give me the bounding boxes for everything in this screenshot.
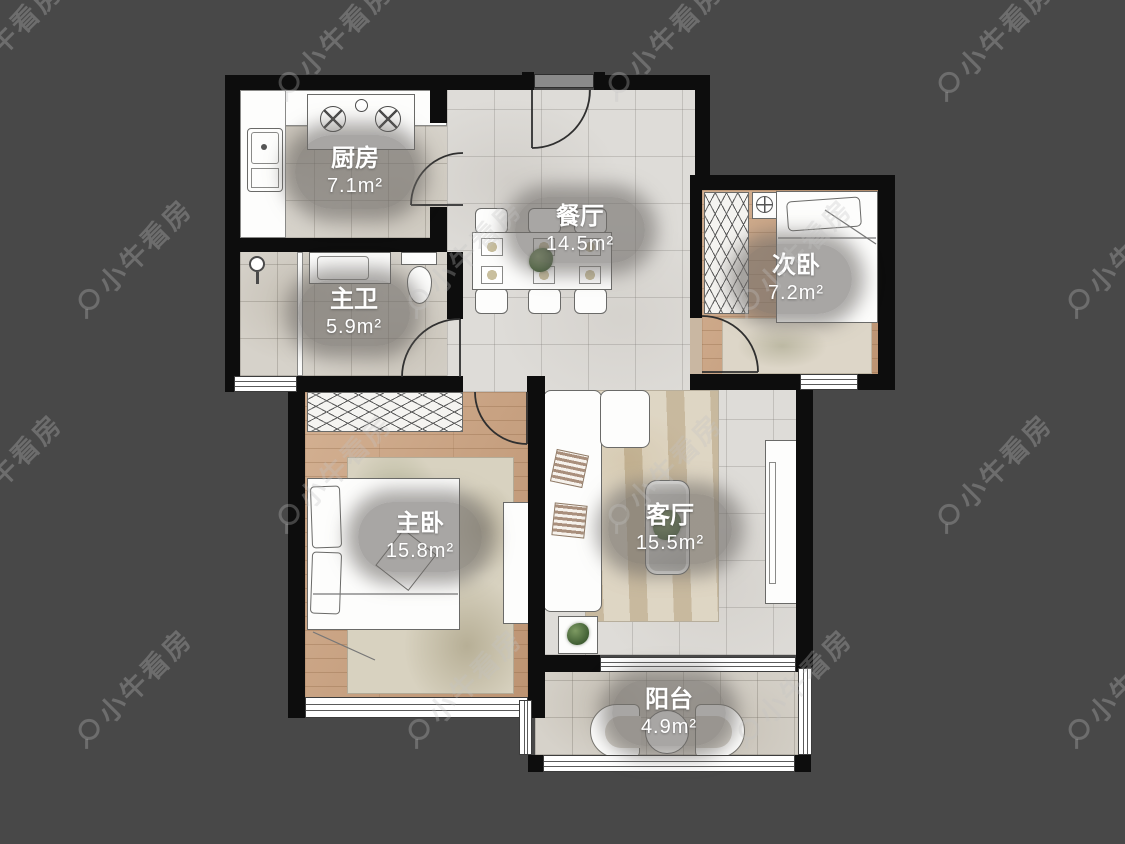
- shower-head-icon: [249, 256, 265, 272]
- window: [519, 700, 532, 755]
- burner-icon: [355, 99, 368, 112]
- room-area: 7.2m²: [768, 281, 824, 306]
- magnifier-logo-icon: [934, 68, 964, 98]
- door-jamb: [594, 72, 605, 90]
- magnifier-logo-icon: [74, 285, 104, 315]
- plate: [481, 238, 503, 256]
- wall: [297, 376, 463, 392]
- watermark-text: 小牛看房: [0, 0, 70, 84]
- room-name: 餐厅: [556, 203, 604, 232]
- window: [798, 668, 812, 755]
- watermark-text: 小牛看房: [948, 0, 1060, 84]
- watermark: 小牛看房: [0, 0, 70, 104]
- watermark-text: 小牛看房: [0, 403, 70, 515]
- sofa-cushion: [550, 449, 589, 488]
- pillow: [310, 485, 342, 548]
- pillow: [786, 196, 862, 231]
- sink-cabinet: [251, 168, 279, 188]
- room-label-kitchen: 厨房 7.1m²: [295, 135, 415, 209]
- pillow: [310, 551, 342, 614]
- watermark: 小牛看房: [68, 618, 200, 750]
- wall: [690, 374, 800, 390]
- wall: [878, 190, 895, 374]
- sofa: [543, 390, 602, 612]
- wall: [527, 376, 545, 392]
- magnifier-logo-icon: [74, 715, 104, 745]
- wall: [225, 75, 532, 90]
- dining-chair: [528, 288, 561, 314]
- room-label-second-bedroom: 次卧 7.2m²: [740, 244, 852, 314]
- watermark: 小牛看房: [1058, 188, 1125, 320]
- watermark-text: 小牛看房: [1078, 618, 1125, 730]
- wall: [795, 755, 811, 772]
- entrance-door-slab: [534, 74, 594, 88]
- wall: [695, 75, 710, 175]
- burner-icon: [375, 106, 401, 132]
- wall: [225, 75, 240, 392]
- room-label-living-room: 客厅 15.5m²: [608, 494, 732, 564]
- sliding-door-window: [600, 657, 796, 672]
- wall: [858, 374, 895, 390]
- wall: [225, 238, 447, 252]
- room-name: 主卫: [330, 286, 378, 315]
- room-label-master-bathroom: 主卫 5.9m²: [298, 280, 410, 346]
- table-lamp-icon: [756, 196, 773, 213]
- dining-chair: [574, 288, 607, 314]
- watermark-text: 小牛看房: [88, 618, 200, 730]
- room-name: 主卧: [396, 510, 444, 539]
- window: [543, 755, 795, 772]
- window: [234, 376, 297, 392]
- watermark: 小牛看房: [1058, 618, 1125, 750]
- doorway: [690, 318, 702, 374]
- watermark: 小牛看房: [928, 403, 1060, 535]
- room-name: 次卧: [772, 252, 820, 281]
- watermark-text: 小牛看房: [1078, 188, 1125, 300]
- shower-arm: [256, 272, 259, 284]
- wall: [430, 75, 447, 123]
- plate: [579, 266, 601, 284]
- wall: [690, 175, 895, 190]
- dining-chair: [475, 288, 508, 314]
- room-area: 7.1m²: [327, 174, 383, 199]
- watermark: 小牛看房: [928, 0, 1060, 104]
- burner-icon: [320, 106, 346, 132]
- tv-cabinet: [503, 502, 529, 624]
- wall: [538, 655, 600, 672]
- room-area: 5.9m²: [326, 315, 382, 340]
- window: [800, 374, 858, 390]
- wardrobe: [307, 392, 463, 432]
- room-name: 客厅: [646, 502, 694, 531]
- wall: [796, 390, 813, 655]
- door-jamb: [522, 72, 534, 90]
- watermark-text: 小牛看房: [948, 403, 1060, 515]
- wall: [603, 75, 710, 90]
- watermark: 小牛看房: [0, 403, 70, 535]
- tv: [769, 462, 776, 584]
- room-label-balcony: 阳台 4.9m²: [612, 680, 726, 746]
- wall: [430, 207, 447, 252]
- faucet: [261, 144, 267, 150]
- wall: [528, 392, 545, 718]
- room-name: 厨房: [331, 145, 379, 174]
- plate: [481, 266, 503, 284]
- sofa-cushion: [551, 502, 587, 538]
- bedside-rug: [722, 318, 872, 374]
- dining-chair: [475, 208, 508, 234]
- window: [305, 697, 528, 718]
- room-name: 阳台: [645, 686, 693, 715]
- room-area: 15.8m²: [386, 539, 454, 564]
- room-label-master-bedroom: 主卧 15.8m²: [358, 502, 482, 572]
- magnifier-logo-icon: [1064, 715, 1094, 745]
- wall: [690, 190, 702, 318]
- bathroom-sink: [317, 256, 369, 280]
- wall: [288, 392, 305, 697]
- watermark-text: 小牛看房: [88, 188, 200, 300]
- room-area: 14.5m²: [546, 232, 614, 257]
- room-area: 4.9m²: [641, 715, 697, 740]
- wall: [288, 697, 305, 718]
- magnifier-logo-icon: [1064, 285, 1094, 315]
- wall: [447, 252, 463, 319]
- floor-plan: 厨房 7.1m² 餐厅 14.5m² 次卧 7.2m² 主卫 5.9m² 主卧 …: [225, 72, 897, 778]
- floorplan-image: 小牛看房 小牛看房 小牛看房 小牛看房 小牛看房 小牛看房 小牛看房 小牛看房 …: [0, 0, 1125, 844]
- room-area: 15.5m²: [636, 531, 704, 556]
- wardrobe: [704, 192, 749, 314]
- toilet-tank: [401, 252, 437, 265]
- magnifier-logo-icon: [934, 500, 964, 530]
- sofa-chaise: [600, 390, 650, 448]
- room-label-dining: 餐厅 14.5m²: [515, 197, 645, 263]
- watermark: 小牛看房: [68, 188, 200, 320]
- wall: [528, 755, 543, 772]
